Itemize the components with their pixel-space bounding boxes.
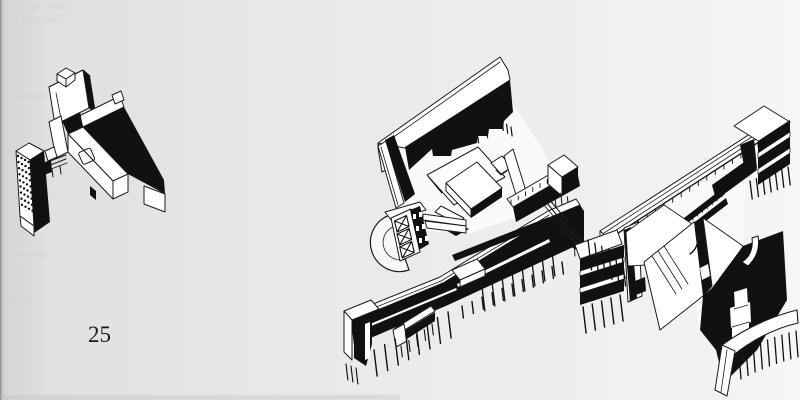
svg-text:lsrwu nsrl: lsrwu nsrl	[22, 14, 62, 25]
svg-text:nmulog: nmulog	[14, 249, 45, 260]
svg-text:qisb-sm: qisb-sm	[14, 91, 46, 102]
svg-text:urs. IPSO: urs. IPSO	[30, 2, 69, 13]
svg-text:bnol: bnol	[12, 295, 30, 306]
svg-text:25: 25	[88, 322, 111, 347]
